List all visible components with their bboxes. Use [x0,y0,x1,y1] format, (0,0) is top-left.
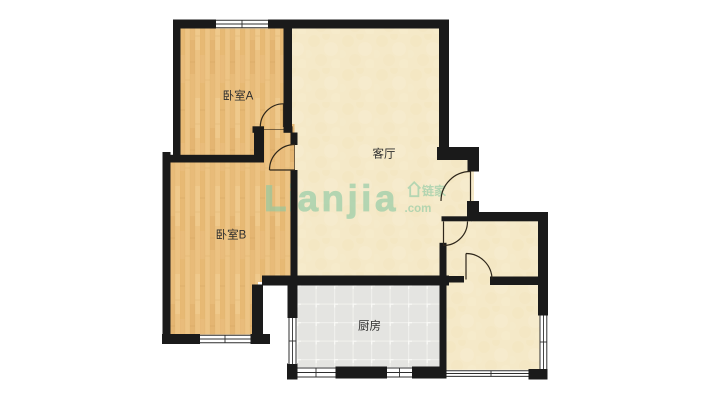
svg-text:.com: .com [405,203,432,215]
svg-text:卧室B: 卧室B [216,228,247,242]
svg-text:卧室A: 卧室A [223,89,254,103]
svg-text:anjia: anjia [298,178,399,219]
svg-text:客厅: 客厅 [373,147,396,161]
svg-text:厨房: 厨房 [358,320,381,333]
